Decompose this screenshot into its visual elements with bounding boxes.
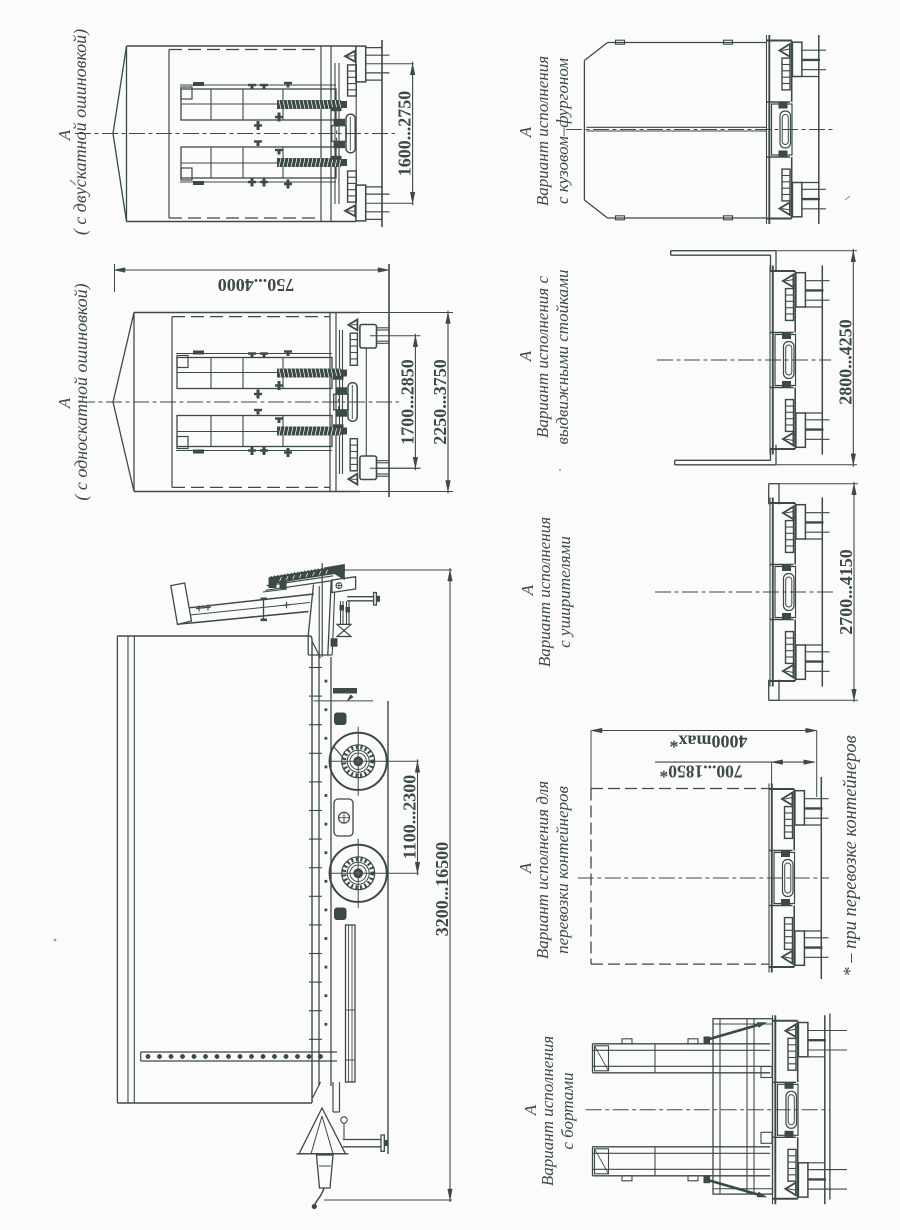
svg-text:Вариант исполнения: Вариант исполнения: [533, 56, 552, 206]
svg-text:700...1850*: 700...1850*: [659, 762, 742, 782]
svg-text:750...4000: 750...4000: [218, 275, 295, 295]
svg-text:с уширителями: с уширителями: [555, 536, 574, 648]
svg-text:Вариант исполнения с: Вариант исполнения с: [533, 276, 552, 438]
svg-text:2700...4150: 2700...4150: [836, 549, 856, 635]
svg-text:1700...2850: 1700...2850: [397, 359, 417, 445]
svg-text:Вариант исполнения для: Вариант исполнения для: [533, 781, 552, 959]
svg-text:выдвижными стойками: выдвижными стойками: [553, 270, 572, 445]
svg-text:4000max*: 4000max*: [670, 732, 748, 752]
svg-text:2800...4250: 2800...4250: [835, 319, 855, 405]
svg-text:с кузовом–фургоном: с кузовом–фургоном: [553, 58, 572, 204]
svg-text:1600...2750: 1600...2750: [395, 91, 415, 177]
svg-text:перевозки контейнеров: перевозки контейнеров: [553, 785, 572, 953]
svg-text:* – при перевозке контейне: * – при перевозке контейнеров: [841, 735, 861, 976]
svg-text:( с односкатной ошиновкой): ( с односкатной ошиновкой): [71, 283, 92, 500]
svg-text:2250...3750: 2250...3750: [430, 359, 450, 445]
svg-text:Вариант исполнения: Вариант исполнения: [535, 517, 554, 667]
svg-text:1100...2300: 1100...2300: [400, 775, 420, 860]
svg-text:3200...16500: 3200...16500: [432, 842, 452, 937]
svg-text:с бортами: с бортами: [558, 1072, 577, 1149]
svg-text:( с двускатной ошиновкой): ( с двускатной ошиновкой): [70, 29, 91, 235]
svg-text:Вариант исполнения: Вариант исполнения: [538, 1036, 557, 1186]
